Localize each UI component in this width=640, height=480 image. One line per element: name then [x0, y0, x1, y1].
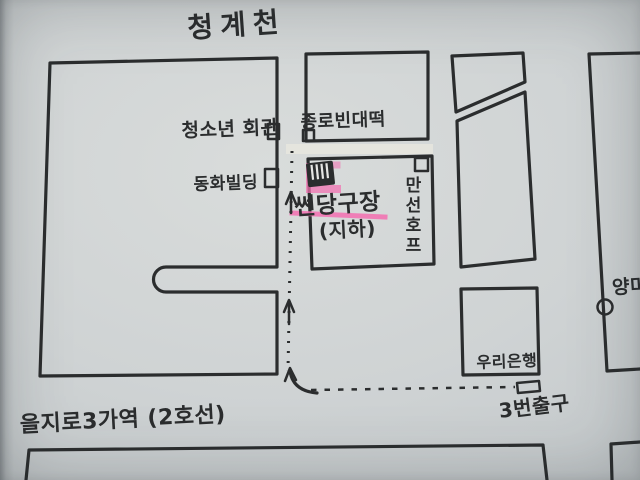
- youth-hall-label: 청소년 회관: [181, 113, 279, 143]
- block-diagonal-lower: [457, 92, 535, 267]
- woori-bank-label: 우리은행: [476, 347, 538, 373]
- manseon-hof-label: 만선호프: [399, 176, 424, 262]
- billiard-hall-icon: [306, 161, 335, 188]
- yangmi-label: 양미: [611, 270, 640, 299]
- tape-strip: [286, 144, 433, 154]
- block-west-large: [40, 58, 277, 376]
- block-diagonal-upper: [452, 53, 525, 112]
- route-dashed-horizontal: [311, 387, 515, 390]
- street-label-cheonggyecheon: 청계천: [186, 0, 287, 47]
- donghwa-building-label: 동화빌딩: [193, 168, 258, 195]
- route-arrow-lower: [284, 300, 294, 324]
- manseon-hof-marker: [415, 158, 428, 171]
- jongno-bindaetteok-label: 종로빈대떡: [300, 105, 386, 134]
- block-far-east: [589, 53, 640, 371]
- basement-note-label: (지하): [318, 212, 377, 244]
- block-south-east: [611, 442, 640, 480]
- block-south-west: [26, 445, 547, 480]
- route-dashed-vertical: [288, 151, 292, 371]
- hand-drawn-map-photo: 청계천 청소년 회관 종로빈대떡 동화빌딩 썬당구장 (지하) 만선호프 양미 …: [0, 0, 640, 480]
